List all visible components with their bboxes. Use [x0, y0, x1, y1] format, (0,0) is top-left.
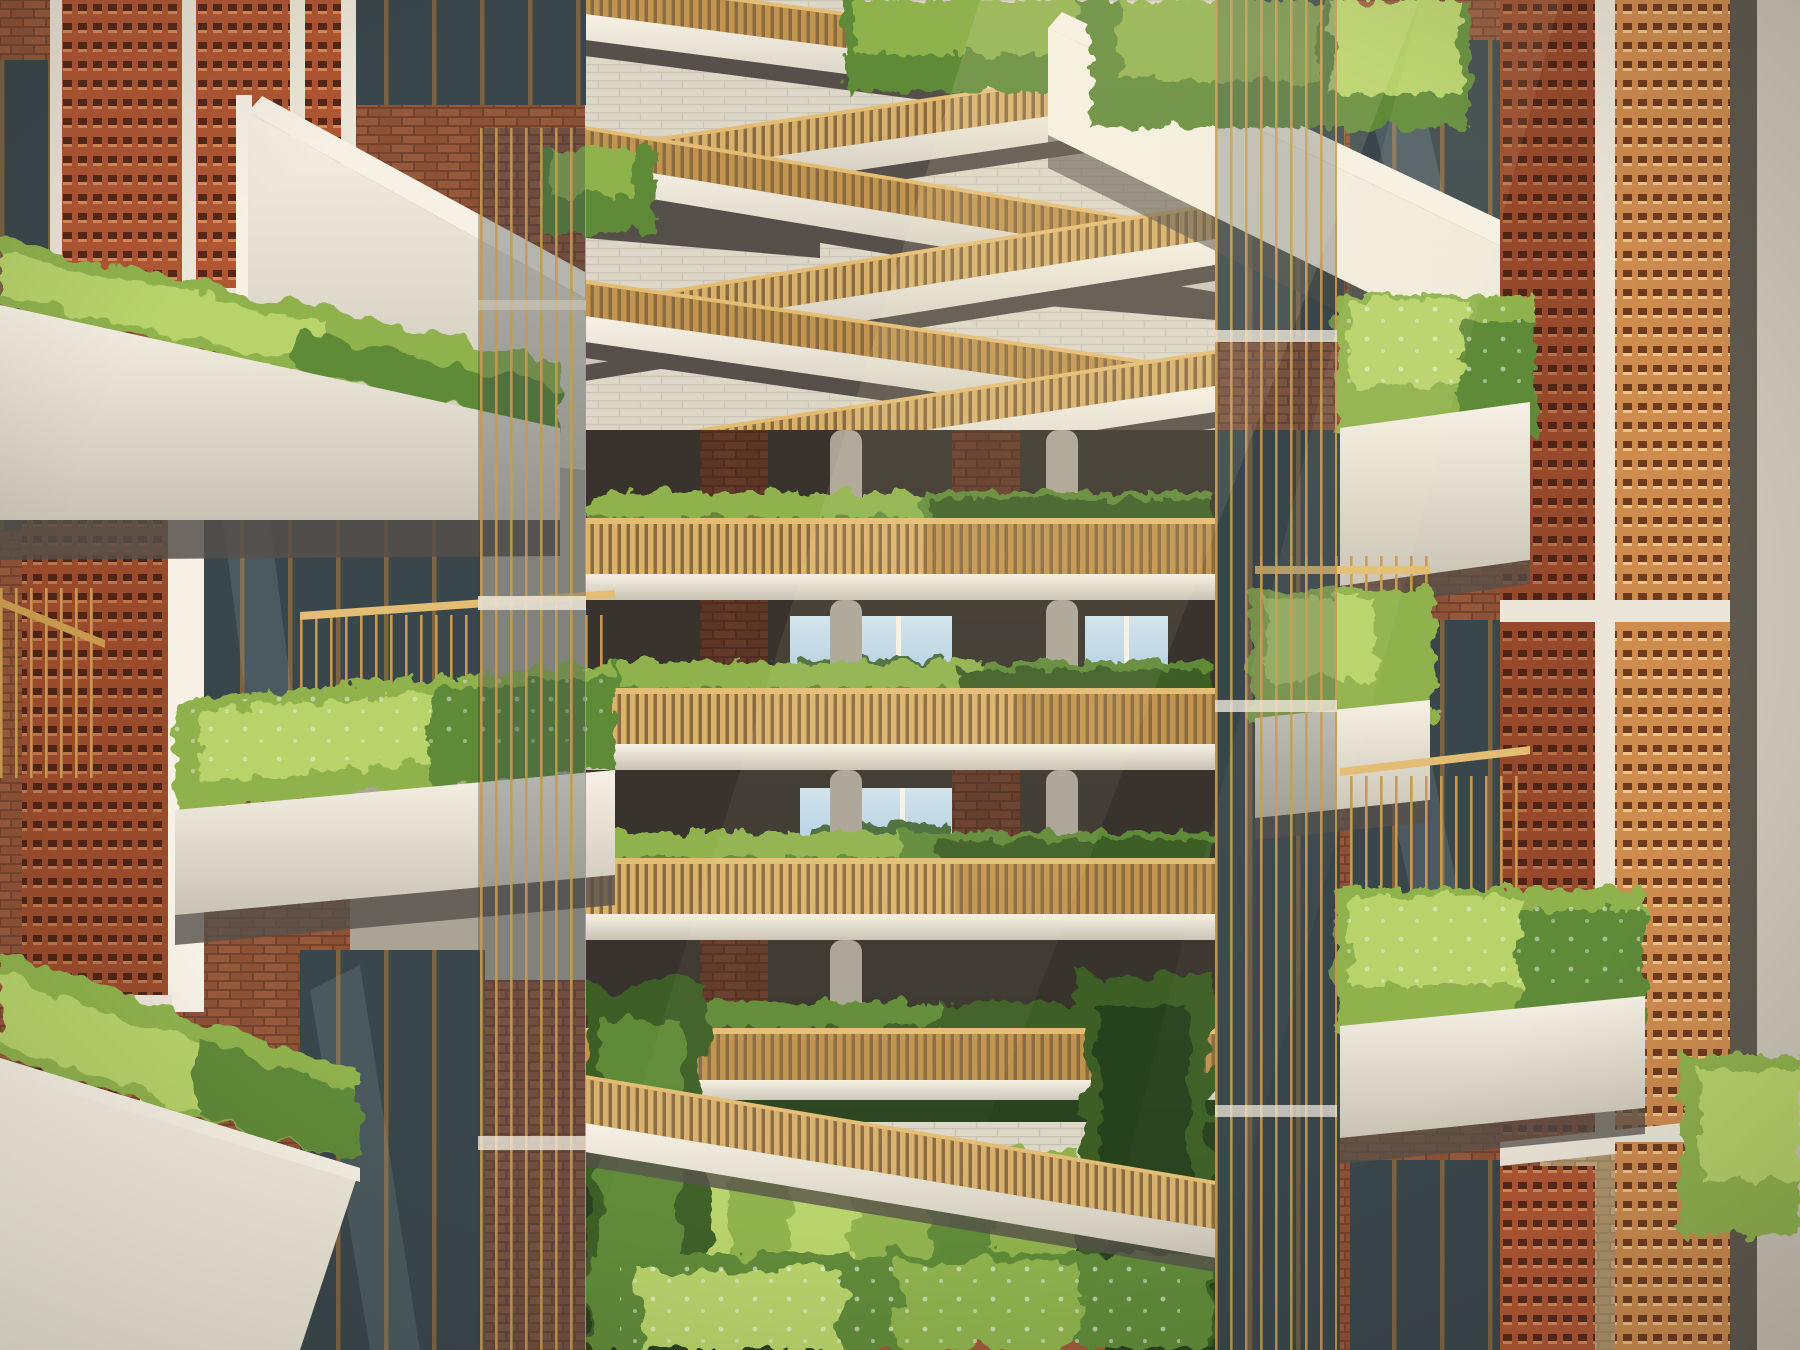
light-overlay	[0, 0, 1800, 1350]
scene	[0, 0, 1800, 1350]
atrium-render	[0, 0, 1800, 1350]
